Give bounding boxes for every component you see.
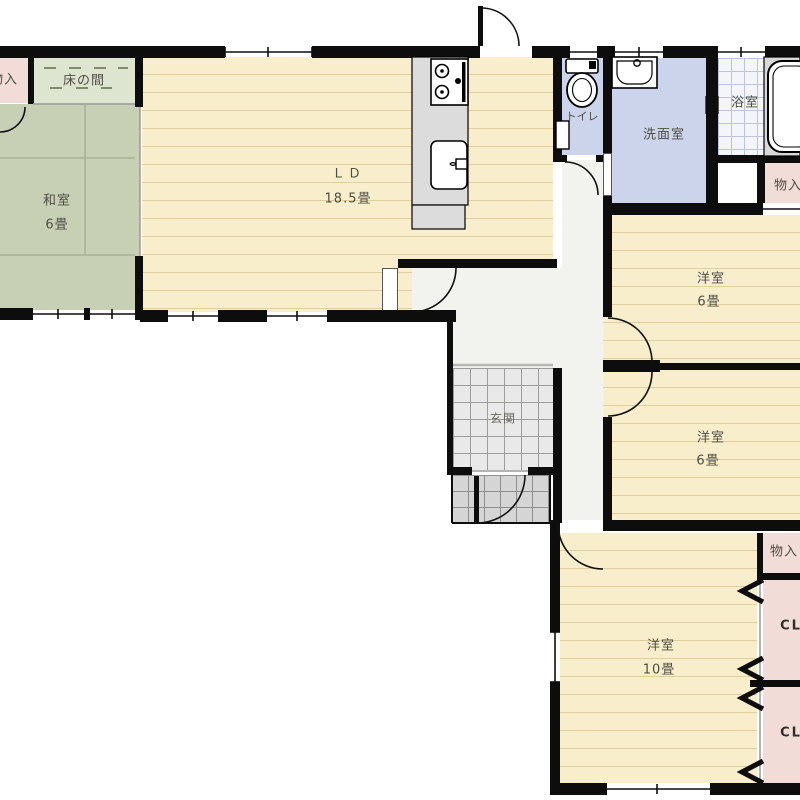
label-washitsu-size: 6畳 (45, 214, 68, 233)
hallway-area (412, 268, 605, 320)
bath-door (705, 96, 719, 114)
hallway-north-arm (562, 160, 603, 268)
kitchen-backdoor-leaf (478, 6, 483, 46)
label-tokonoma: 床の間 (63, 70, 105, 89)
living-dining-area (142, 57, 412, 312)
kitchen-backdoor-arc (481, 8, 519, 46)
label-genkan: 玄関 (490, 410, 516, 427)
toilet-area (562, 58, 603, 155)
label-storage-bottom-right: 物入 (770, 541, 798, 560)
ld-door-panel (382, 268, 398, 312)
label-closet2: CL (780, 726, 800, 741)
entrance-porch-area (452, 475, 550, 523)
bedroom1-area (603, 215, 800, 363)
label-storage-bath: 物入 (774, 175, 800, 194)
label-closet1: CL (780, 619, 800, 634)
label-living-dining-size: 18.5畳 (325, 188, 372, 207)
label-bedroom1: 洋室 (697, 268, 725, 287)
label-washitsu: 和室 (43, 190, 71, 209)
label-bathroom: 浴室 (731, 92, 759, 111)
label-washroom: 洗面室 (643, 124, 685, 143)
hallway-south-corridor (562, 368, 603, 520)
label-bedroom3: 洋室 (647, 635, 675, 654)
kitchen-area (412, 57, 553, 261)
label-toilet: トイレ (566, 108, 599, 124)
hallway-genkan-front (453, 320, 605, 368)
label-storage-top-left: 物入 (0, 69, 18, 88)
label-living-dining: ＬＤ (332, 163, 364, 182)
label-bedroom2-size: 6畳 (696, 450, 719, 469)
label-bedroom1-size: 6畳 (697, 291, 720, 310)
floorplan-canvas: 物入 床の間 和室 6畳 ＬＤ 18.5畳 トイレ 洗面室 浴室 物入 洋室 6… (0, 0, 800, 800)
label-bedroom3-size: 10畳 (643, 659, 676, 678)
washroom-door (603, 153, 612, 196)
label-bedroom2: 洋室 (697, 427, 725, 446)
